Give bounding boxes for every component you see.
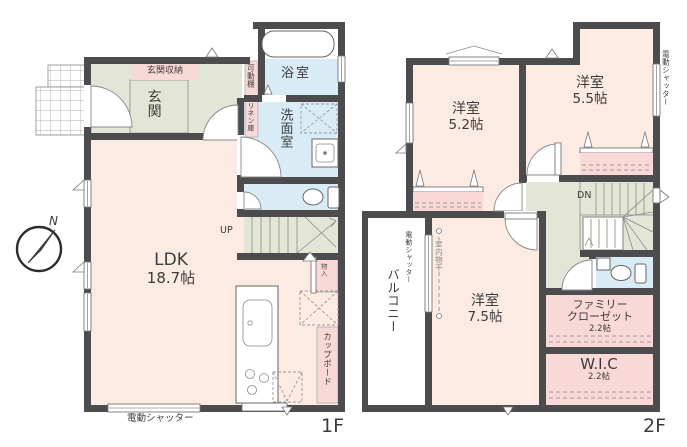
toilet-2f-icon: [611, 266, 631, 281]
movable-shelf-label: 可動棚: [246, 64, 254, 88]
ldk-label: LDK 18.7帖: [121, 251, 221, 287]
entrance-label: 玄関: [145, 89, 161, 118]
balcony-label: バルコニー: [385, 268, 399, 333]
room-7-5-label: 洋室 7.5帖: [435, 294, 535, 325]
compass-north-label: N: [49, 215, 58, 228]
floor1-label: 1F: [321, 416, 344, 437]
storage-door: [311, 257, 316, 293]
kitchen-counter: [236, 286, 278, 403]
family-closet-label: ファミリー クローゼット 2.2帖: [541, 299, 659, 334]
shutter-1f-label: 電動シャッター: [127, 414, 194, 425]
entrance-storage-label: 玄関収納: [134, 66, 196, 76]
floor2-label: 2F: [643, 416, 666, 437]
stairs-down-label: DN: [577, 191, 591, 202]
toilet2f-basin: [597, 258, 610, 270]
cupboard-label: カップボード: [321, 332, 331, 386]
room-5-2-label: 洋室 5.2帖: [416, 102, 516, 133]
bathtub: [262, 31, 334, 57]
floorplan-page: N 玄関収納 玄関 可動棚 リネン庫 浴室 洗面室 UP 物入 LDK 18.7…: [0, 0, 687, 447]
right-shutter-label: 電動シャッター: [661, 50, 669, 106]
toilet-1f-icon: [303, 189, 323, 205]
compass: [17, 227, 61, 271]
linen-closet-label: リネン庫: [246, 102, 254, 132]
indoor-drying-label: 室内物干: [434, 240, 442, 272]
balcony-shutter-label: 電動シャッター: [404, 231, 412, 284]
washroom-label: 洗面室: [277, 108, 292, 149]
storage-label: 物入: [319, 263, 326, 277]
room-5-5-label: 洋室 5.5帖: [540, 76, 640, 107]
bathroom-label: 浴室: [281, 67, 311, 82]
stairs-up-label: UP: [220, 226, 233, 237]
wic-label: W.I.C 2.2帖: [549, 356, 649, 382]
